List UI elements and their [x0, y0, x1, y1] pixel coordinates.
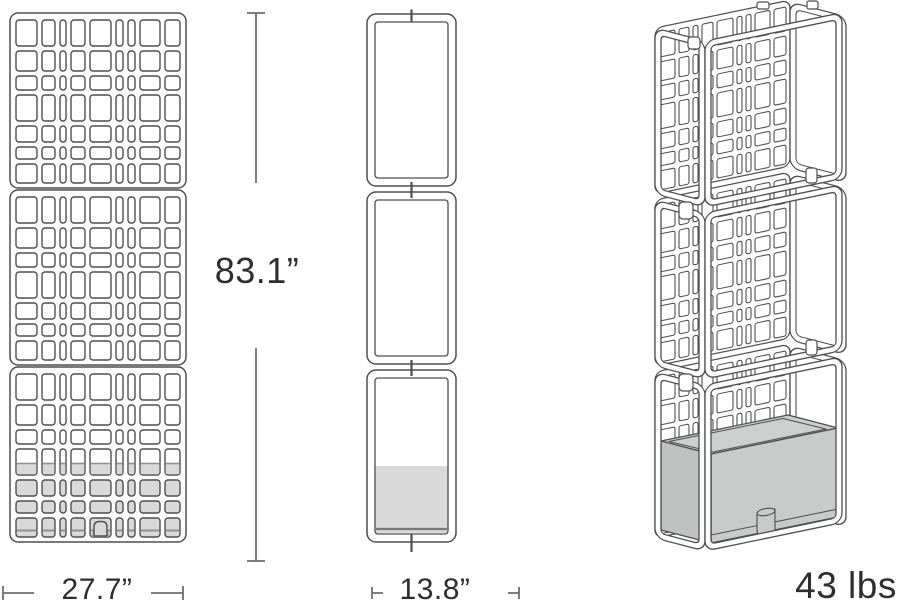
- isometric-view-trellis: [655, 0, 846, 551]
- depth-dimension-label: 13.8”: [383, 575, 487, 605]
- height-dimension-label: 83.1”: [203, 253, 311, 289]
- line-art-canvas: [0, 0, 900, 604]
- width-dimension-label: 27.7”: [45, 575, 149, 605]
- technical-drawing: 83.1” 27.7” 13.8” 43 lbs: [0, 0, 900, 604]
- side-view-trellis: [367, 10, 456, 553]
- weight-label: 43 lbs: [789, 567, 900, 604]
- front-view-trellis: [10, 13, 186, 542]
